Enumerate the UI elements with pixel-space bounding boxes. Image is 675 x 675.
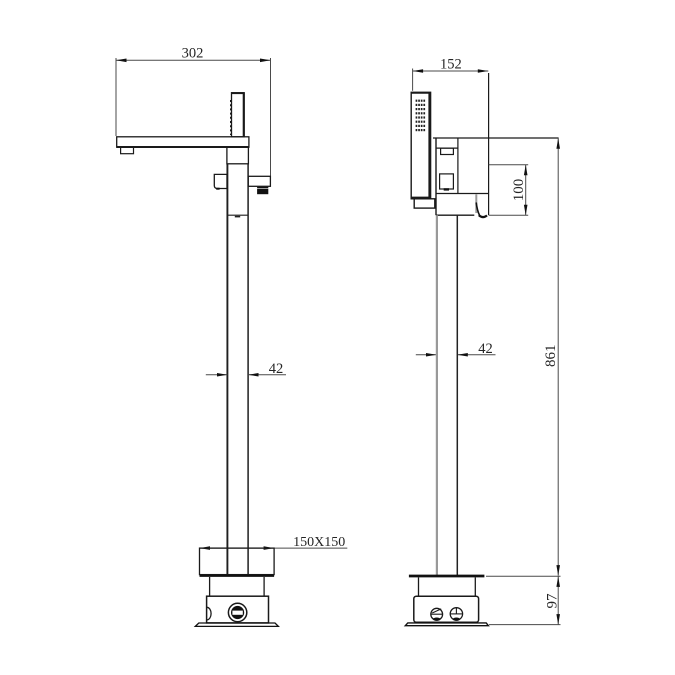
- svg-text:861: 861: [543, 345, 559, 368]
- svg-text:42: 42: [269, 361, 284, 377]
- svg-text:42: 42: [478, 341, 493, 357]
- svg-text:302: 302: [182, 46, 204, 62]
- svg-text:152: 152: [440, 57, 462, 73]
- svg-text:97: 97: [545, 593, 561, 609]
- svg-text:100: 100: [511, 179, 527, 202]
- svg-text:150X150: 150X150: [293, 535, 345, 550]
